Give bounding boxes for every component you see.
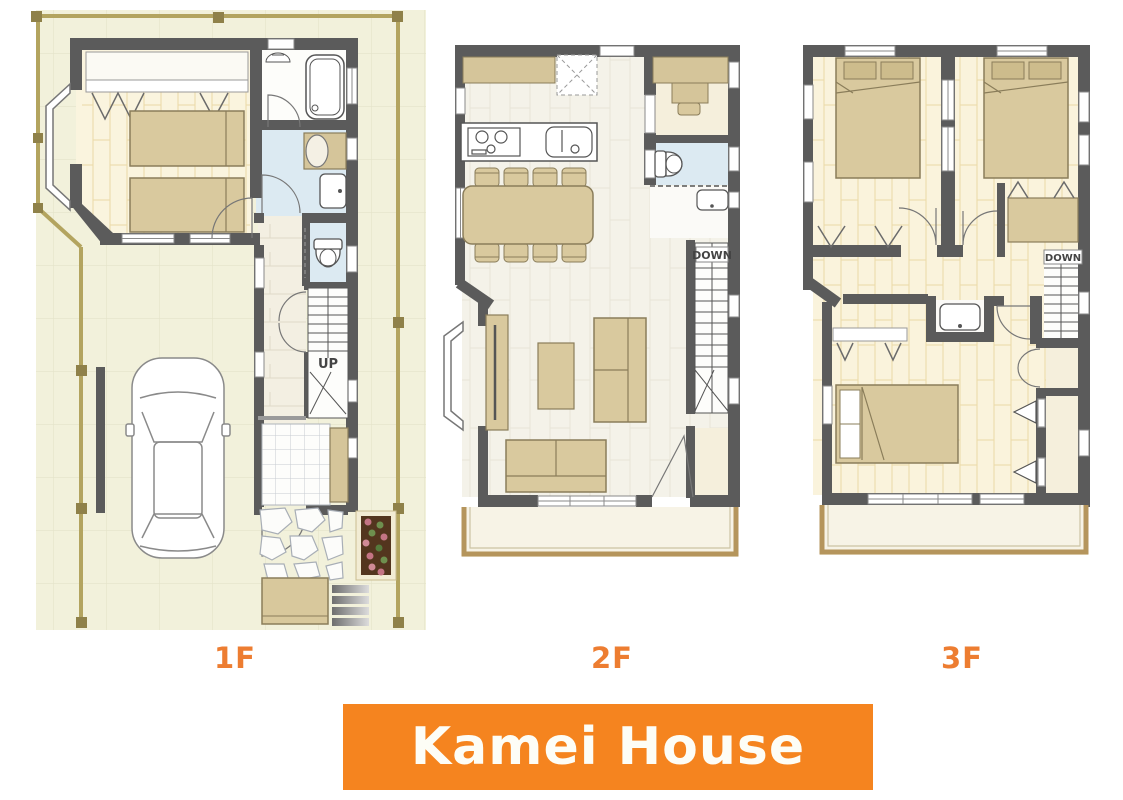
floorplan-3f: DOWN (803, 45, 1090, 555)
genkan-floor (262, 424, 330, 505)
svg-text:DOWN: DOWN (692, 249, 732, 262)
bed-single-1 (130, 111, 244, 166)
bed-double-1 (836, 58, 920, 178)
stairs-2f (695, 243, 728, 413)
washing-machine (304, 133, 346, 169)
tv-board (486, 315, 508, 430)
house-title: Kamei House (411, 717, 805, 777)
stairs-down-label-2f: DOWN (692, 247, 732, 262)
floorplans-canvas: UP (0, 0, 1123, 650)
floor-label-2f: 2F (572, 641, 652, 675)
sofa-vertical (594, 318, 646, 422)
balcony-2f (462, 507, 738, 557)
stairs-down-label-3f: DOWN (1044, 250, 1082, 264)
sofa-horizontal (506, 440, 606, 492)
page: UP (0, 0, 1123, 800)
stairs-1f (308, 288, 348, 418)
wood-deck (262, 578, 328, 624)
toilet-icon-2f (655, 151, 682, 177)
washbasin-3f (940, 304, 980, 330)
desk-chair (678, 103, 700, 115)
kitchen-back-counter (463, 57, 555, 83)
bathtub (306, 55, 344, 119)
coffee-table (538, 343, 574, 409)
flower-bed (356, 511, 396, 580)
dining-table (463, 186, 593, 244)
closet-lower-floor (1046, 396, 1078, 496)
floor-label-1f: 1F (195, 641, 275, 675)
stone-path (260, 508, 343, 580)
svg-text:DOWN: DOWN (1045, 253, 1081, 264)
storage-floor (694, 428, 730, 498)
pipe-space-icon (557, 55, 597, 95)
bed-double-3 (836, 385, 958, 463)
dining-set (463, 168, 593, 262)
closet-upper-floor (1046, 348, 1078, 388)
car-icon (126, 358, 230, 558)
floorplan-1f: UP (31, 10, 426, 630)
garage-wall (96, 367, 105, 513)
shoe-cabinet (330, 428, 348, 502)
floorplan-2f: DOWN (444, 45, 740, 557)
washbasin-1f (320, 174, 346, 208)
title-banner: Kamei House (343, 704, 873, 790)
bay-window-2f (444, 322, 463, 430)
bed-single-2 (130, 178, 244, 232)
bed-double-2 (984, 58, 1068, 178)
desk (672, 83, 708, 103)
floor-label-3f: 3F (922, 641, 1002, 675)
washbasin-2f (697, 190, 728, 210)
stairs-up-label: UP (318, 357, 338, 372)
balcony-3f (820, 505, 1088, 555)
kitchen-island (461, 123, 597, 161)
